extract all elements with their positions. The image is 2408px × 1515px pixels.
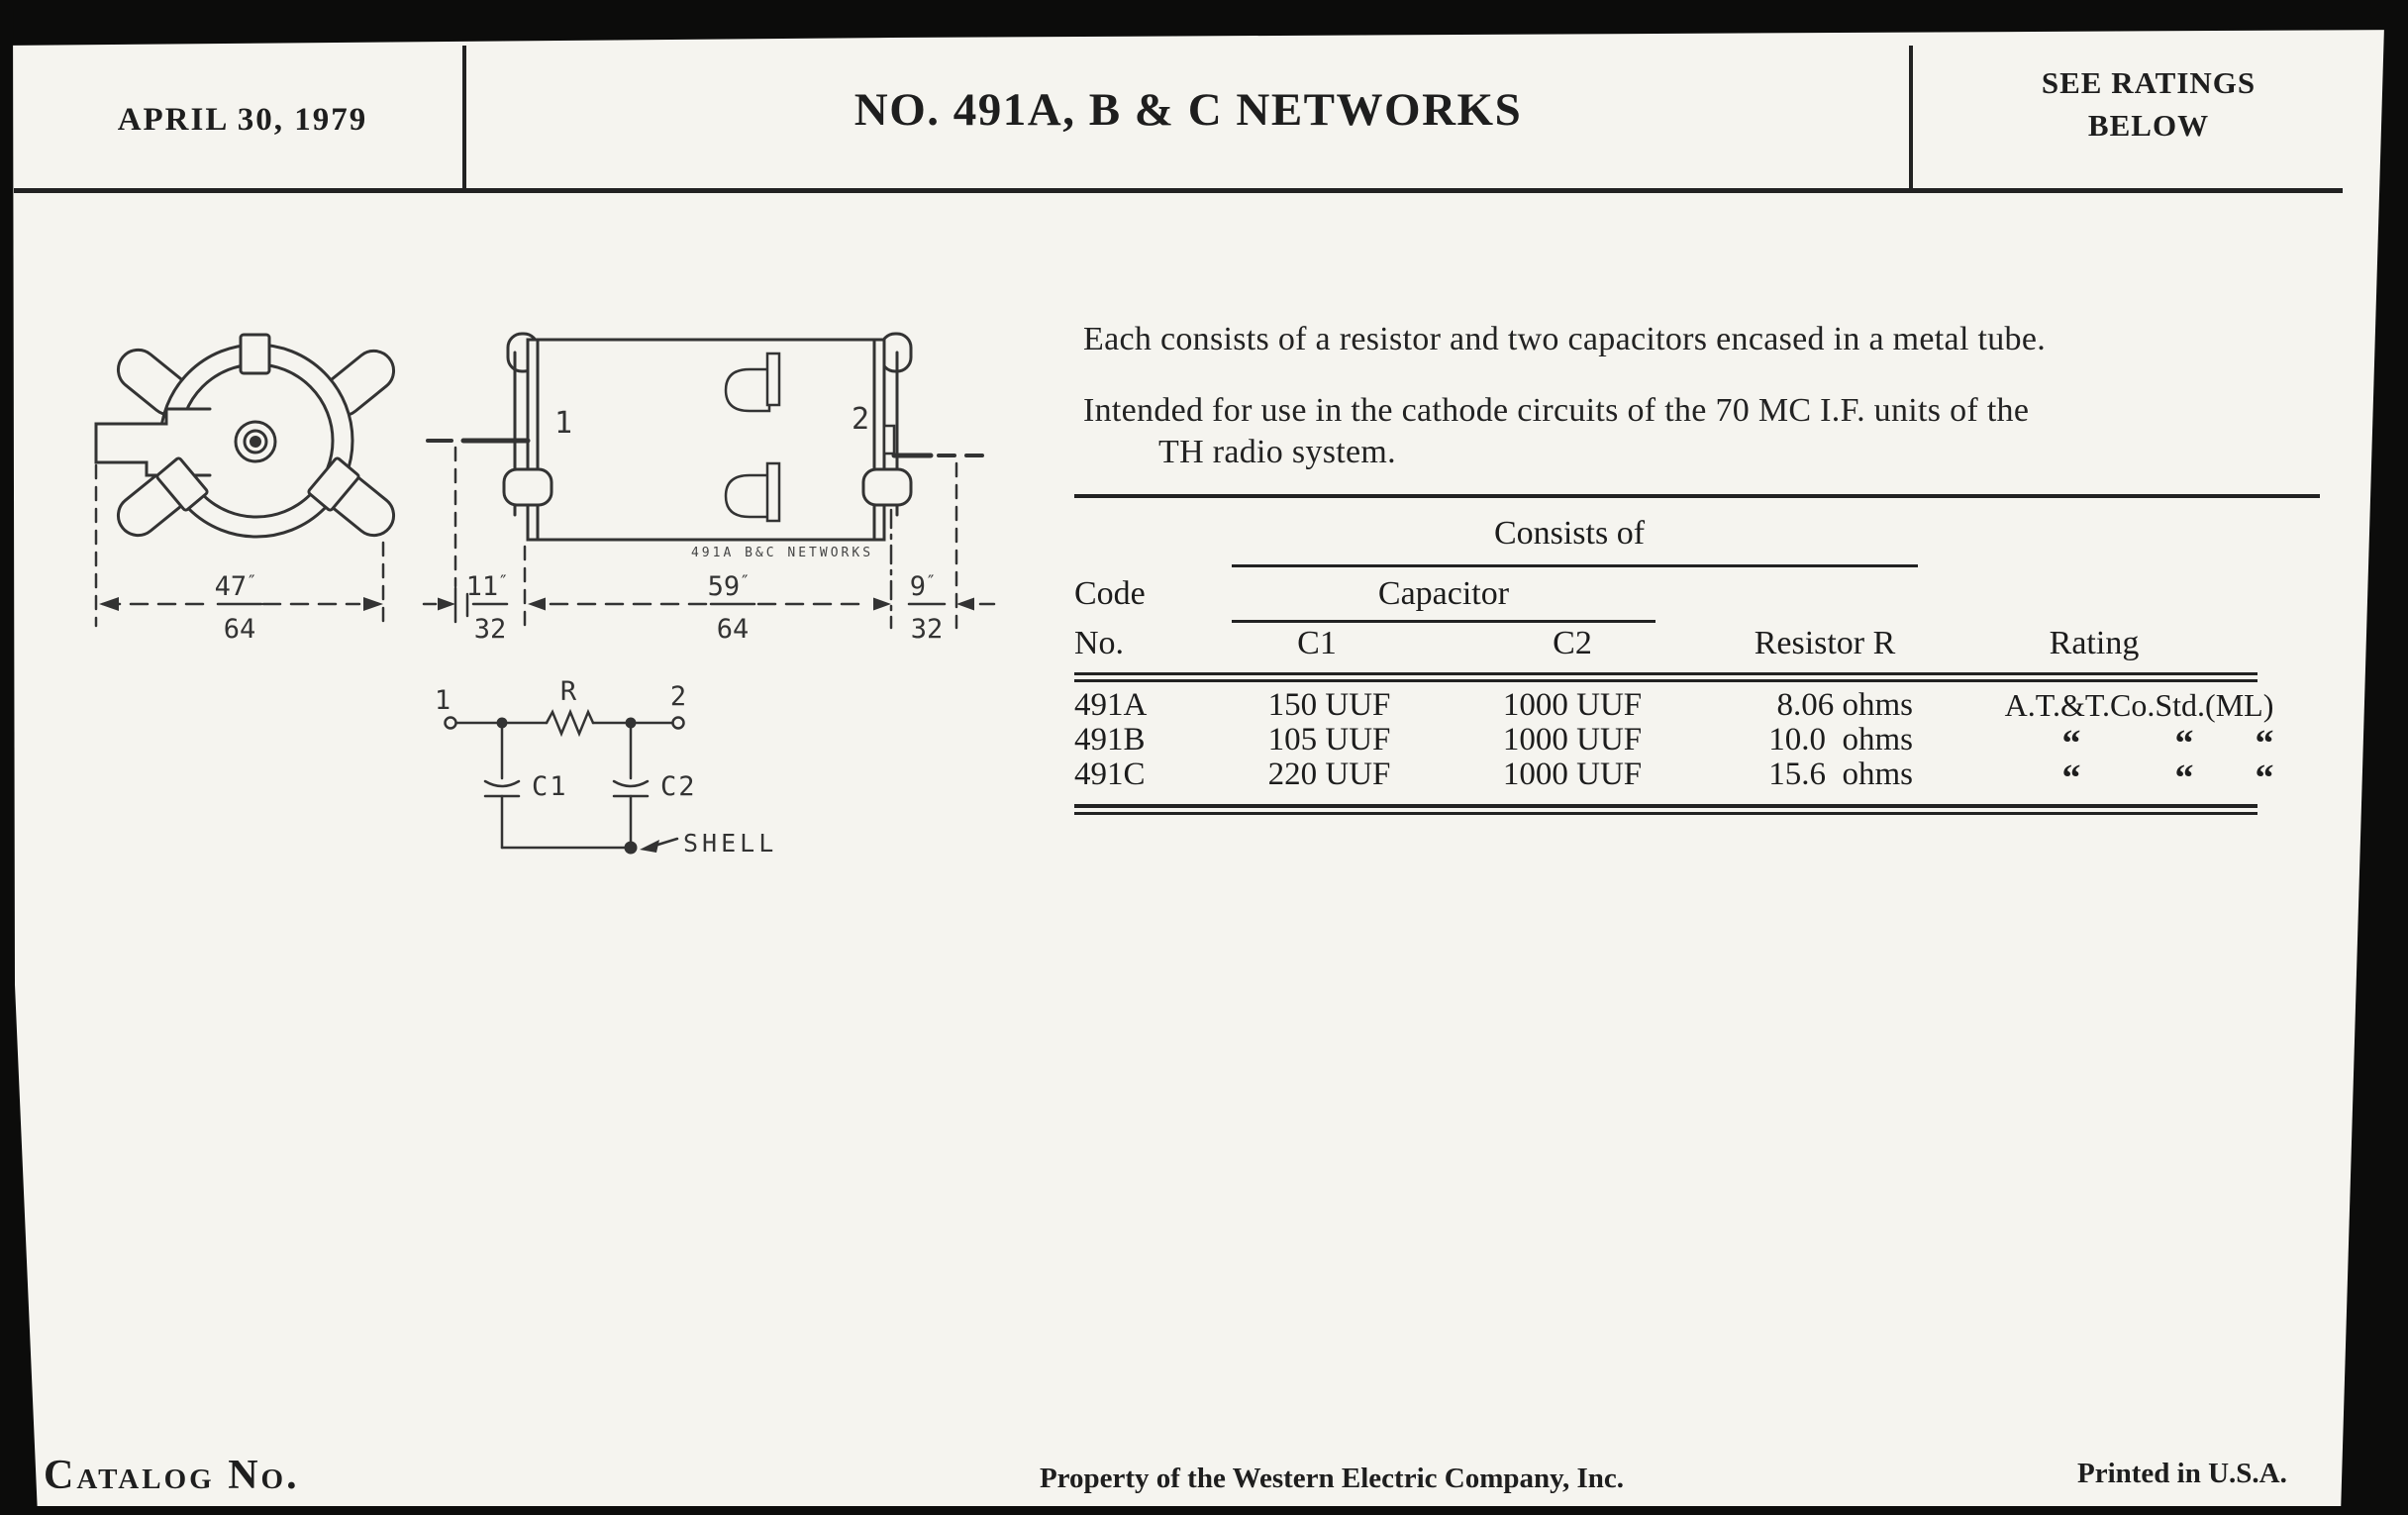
arrowhead: [363, 597, 383, 611]
clamp-band: [504, 469, 552, 505]
resistor-symbol: [547, 712, 593, 734]
description-para2-line2: TH radio system.: [1158, 434, 2248, 471]
clamp-band: [863, 469, 911, 505]
schematic-shell-label: SHELL: [683, 829, 777, 858]
cell-c1: 220 UUF: [1233, 757, 1426, 793]
table-c1-header: C1: [1277, 625, 1356, 662]
terminal-2-node: [673, 718, 684, 729]
header-bottom-rule: [14, 188, 2343, 193]
solder-lug-loop: [726, 475, 769, 517]
table-top-rule: [1074, 494, 2320, 498]
svg-text:11″: 11″: [466, 571, 509, 602]
table-consists-of-header: Consists of: [1421, 515, 1718, 553]
scan-border-top: [0, 0, 2408, 46]
dimension-numerator: 9: [910, 571, 926, 602]
cell-c1: 150 UUF: [1233, 687, 1426, 724]
schematic-drawing: 1 R 2 C1 C2 SHELL: [435, 676, 777, 858]
dimension-denominator: 64: [224, 614, 256, 645]
property-notice: Property of the Western Electric Company…: [1000, 1463, 1663, 1495]
svg-text:47″: 47″: [215, 571, 257, 602]
cell-c2: 1000 UUF: [1473, 757, 1671, 793]
schematic-c1-label: C1: [532, 771, 568, 802]
table-bottom-rule-b: [1074, 812, 2257, 815]
schematic-c2-label: C2: [660, 771, 697, 802]
side-view-drawing: 1 2 491A B&C NETWORKS: [428, 334, 992, 560]
terminal-2-label: 2: [852, 402, 869, 437]
table-consists-of-underline: [1232, 564, 1918, 567]
cell-resistor: 10.0 ohms: [1701, 722, 1913, 758]
solder-lug-bar: [767, 353, 779, 405]
table-capacitor-header: Capacitor: [1345, 575, 1543, 613]
cell-resistor: 8.06 ohms: [1701, 687, 1913, 724]
cell-c2: 1000 UUF: [1473, 722, 1671, 758]
arrowhead: [99, 597, 119, 611]
dimension-denominator: 32: [911, 614, 944, 645]
table-bottom-rule-a: [1074, 804, 2257, 808]
table-capacitor-underline: [1232, 620, 1655, 623]
table-code-header: Code: [1074, 575, 1146, 613]
solder-lug-bar: [767, 463, 779, 521]
end-view-drawing: [96, 335, 402, 544]
table-c2-header: C2: [1533, 625, 1612, 662]
table-header-rule-b: [1074, 679, 2257, 682]
page-title: NO. 491A, B & C NETWORKS: [475, 83, 1901, 137]
inch-mark: ″: [498, 572, 508, 592]
ditto-mark: “: [2052, 757, 2091, 800]
center-hub-dot: [251, 438, 260, 447]
ditto-mark: “: [2164, 757, 2204, 800]
scan-border-left: [0, 0, 40, 1515]
terminal-boss: [884, 426, 894, 454]
scan-border-bottom: [0, 1506, 2408, 1515]
cell-code: 491C: [1074, 757, 1203, 793]
dimension-denominator: 32: [474, 614, 507, 645]
description-para1: Each consists of a resistor and two capa…: [1083, 321, 2331, 358]
arrowhead: [873, 598, 891, 611]
table-rating-header: Rating: [2015, 625, 2173, 662]
description-para2-line1: Intended for use in the cathode circuits…: [1083, 392, 2331, 430]
cell-c2: 1000 UUF: [1473, 687, 1671, 724]
arrowhead: [528, 598, 546, 611]
inch-mark: ″: [926, 572, 936, 592]
dimension-denominator: 64: [717, 614, 750, 645]
capacitor-plate-curved: [614, 781, 648, 786]
cell-resistor: 15.6 ohms: [1701, 757, 1913, 793]
inch-mark: ″: [247, 572, 256, 592]
ditto-mark: “: [2245, 757, 2284, 800]
body-stamp-text: 491A B&C NETWORKS: [691, 546, 873, 560]
cell-code: 491B: [1074, 722, 1203, 758]
schematic-resistor-label: R: [560, 676, 578, 707]
arrowhead: [438, 598, 455, 611]
issue-date: APRIL 30, 1979: [30, 102, 455, 139]
table-no-header: No.: [1074, 625, 1124, 662]
table-resistor-header: Resistor R: [1736, 625, 1914, 662]
dimension-numerator: 11: [466, 571, 499, 602]
shell-node-dot: [625, 842, 638, 855]
cell-rating: A.T.&T.Co.Std.(ML): [1988, 687, 2290, 724]
header-divider-1: [462, 46, 466, 189]
dimension-numerator: 47: [215, 571, 248, 602]
ratings-note-line1: SEE RATINGS: [1926, 61, 2371, 104]
arrowhead: [640, 840, 659, 853]
rim-tab: [241, 335, 269, 373]
arrowhead: [956, 598, 974, 611]
schematic-terminal-1-label: 1: [435, 685, 452, 716]
ratings-note-line2: BELOW: [1926, 104, 2371, 147]
mounting-bracket: [96, 409, 210, 475]
dimension-numerator: 59: [708, 571, 741, 602]
terminal-1-label: 1: [554, 406, 572, 441]
printed-in-usa: Printed in U.S.A.: [2077, 1458, 2287, 1490]
tube-body: [528, 340, 884, 540]
header-divider-2: [1909, 46, 1913, 189]
catalog-page: APRIL 30, 1979 NO. 491A, B & C NETWORKS …: [0, 0, 2408, 1515]
cell-c1: 105 UUF: [1233, 722, 1426, 758]
table-header-rule-a: [1074, 672, 2257, 675]
ratings-note: SEE RATINGS BELOW: [1926, 61, 2371, 148]
engineering-drawings: 47″ 64 1 2 491A B&C NET: [59, 317, 1030, 891]
inch-mark: ″: [740, 572, 750, 592]
cell-code: 491A: [1074, 687, 1203, 724]
solder-lug-loop: [726, 369, 769, 411]
svg-text:9″: 9″: [910, 571, 937, 602]
scan-border-right: [2333, 26, 2408, 1515]
svg-text:59″: 59″: [708, 571, 751, 602]
catalog-no-label: Catalog No.: [44, 1452, 300, 1499]
schematic-terminal-2-label: 2: [670, 681, 688, 712]
terminal-1-node: [446, 718, 456, 729]
capacitor-plate-curved: [485, 781, 519, 786]
